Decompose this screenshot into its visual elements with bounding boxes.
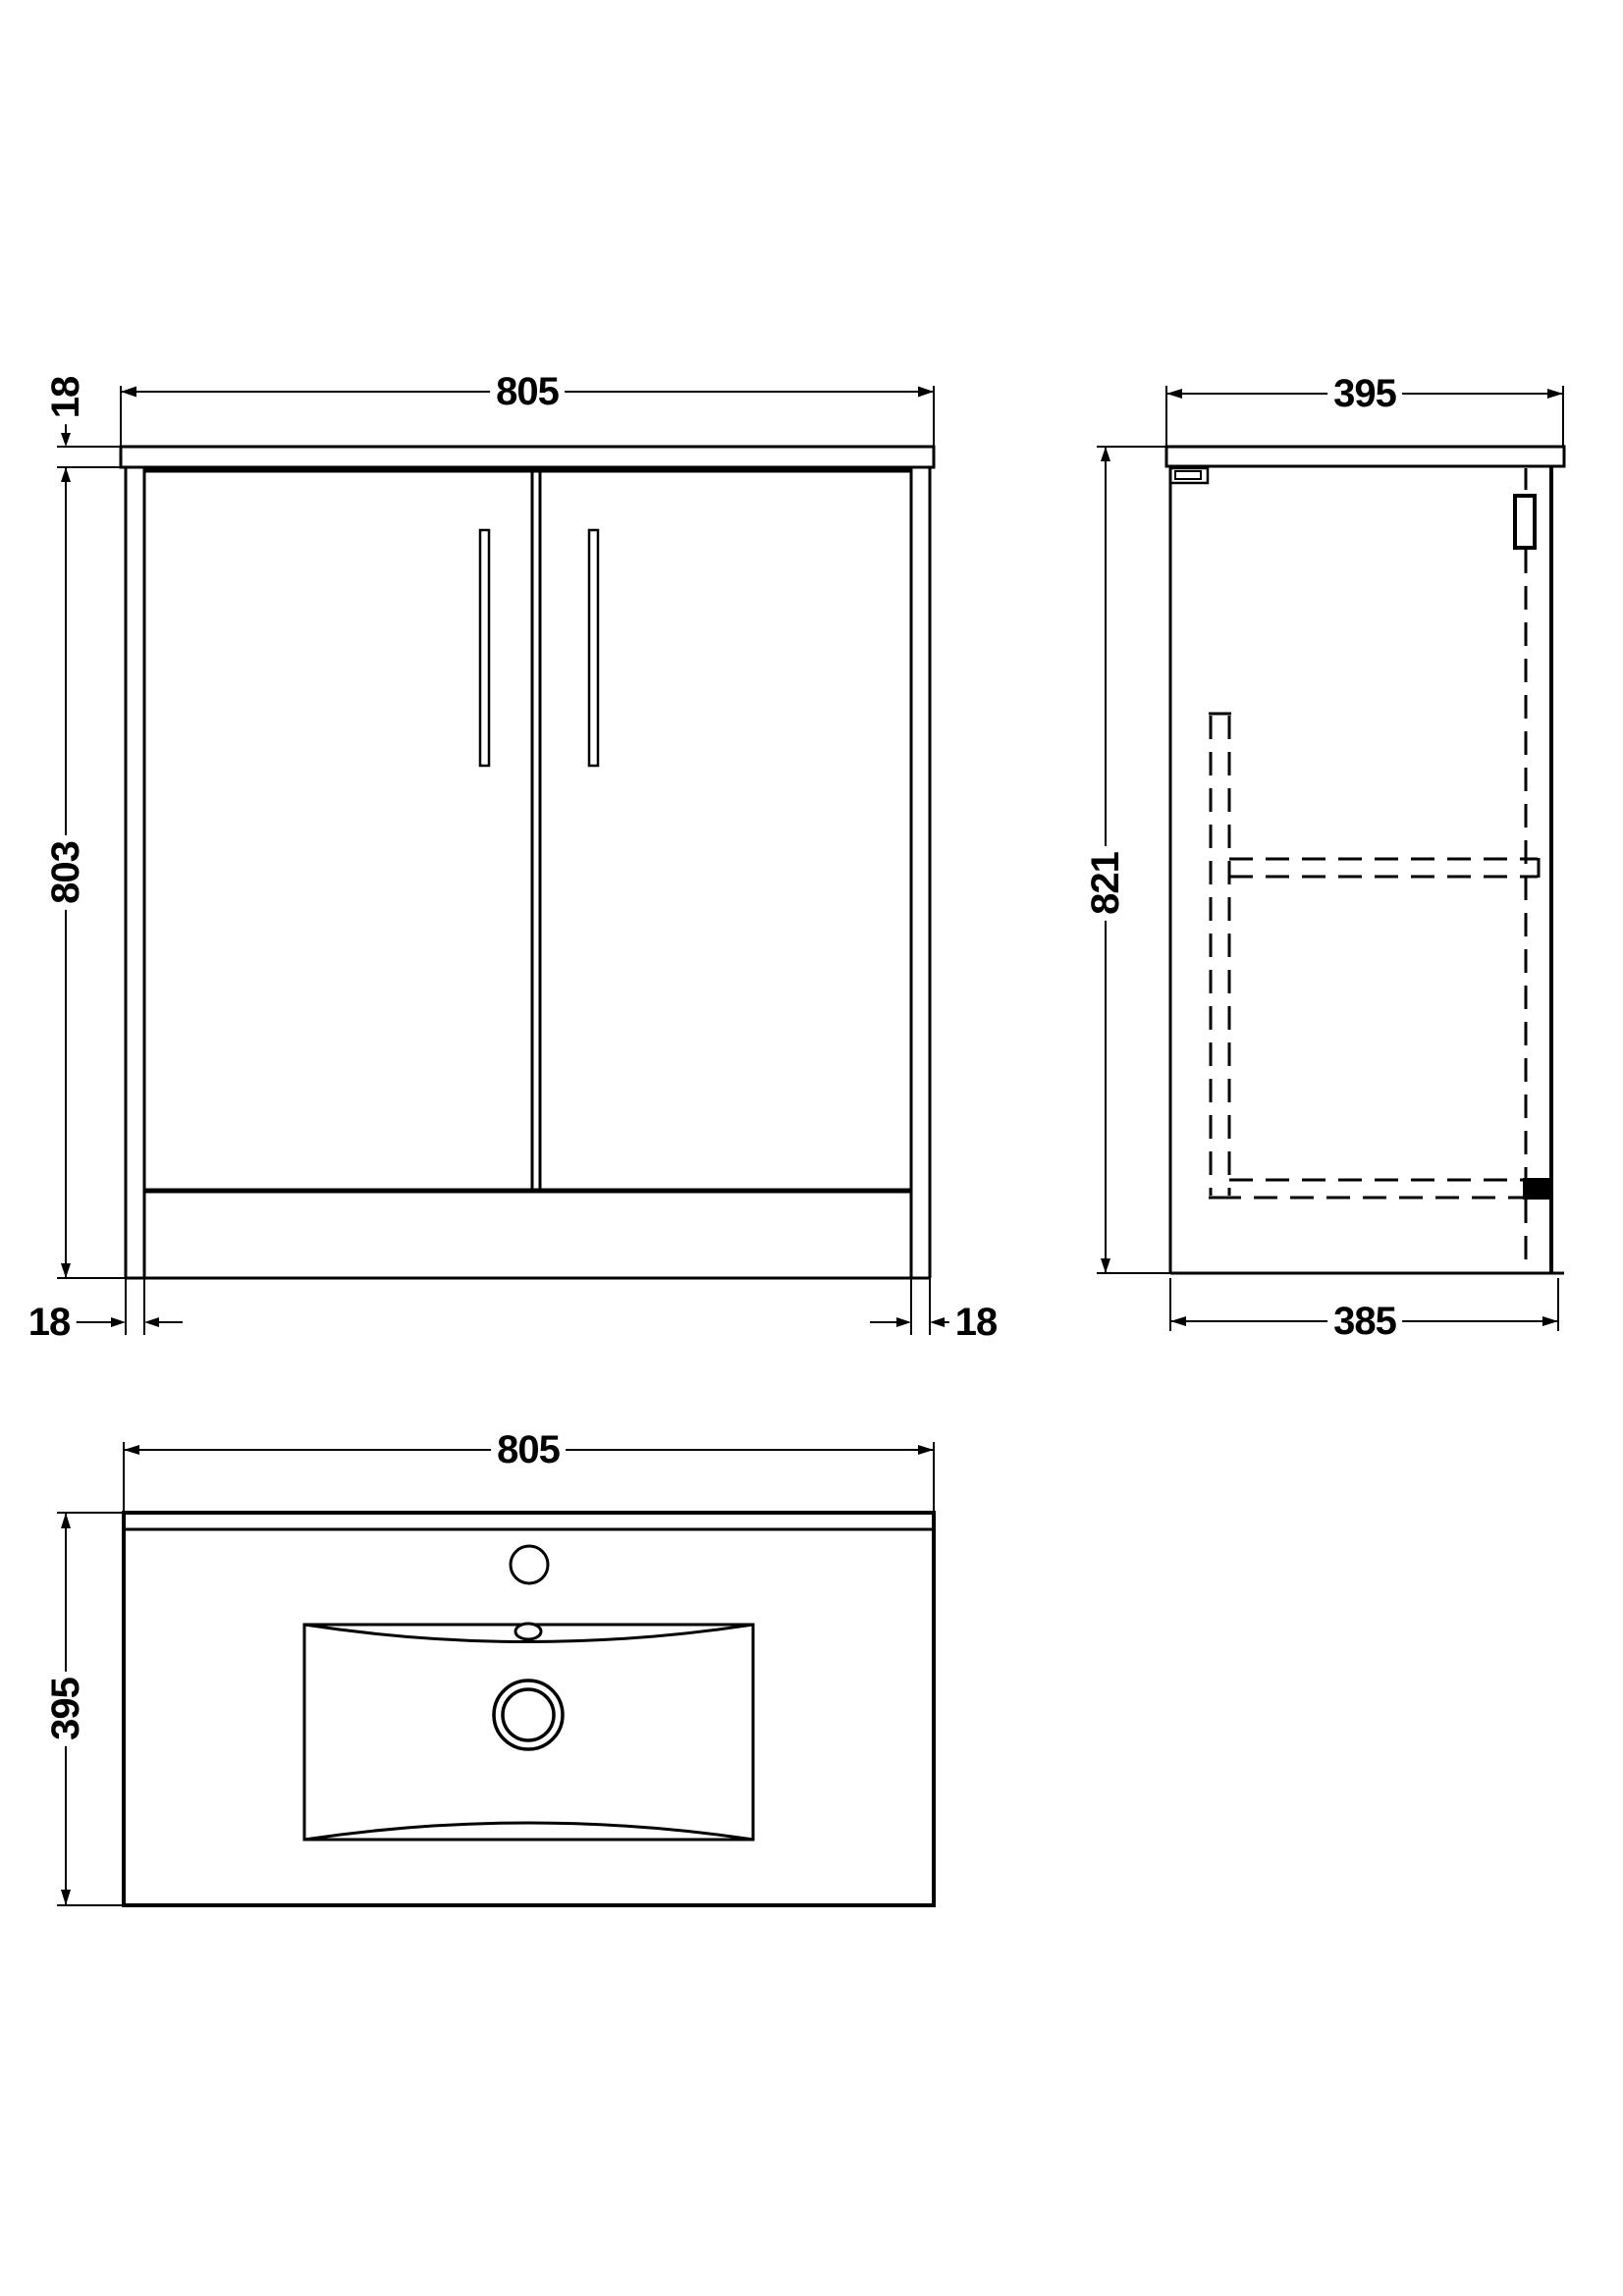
technical-drawing-canvas: 805 18 803 18 18 395 821 385 805 395 (0, 0, 1623, 2296)
front-door-gap (532, 472, 540, 1189)
plan-depth-label: 395 (44, 1672, 87, 1746)
front-left-door-handle (480, 530, 489, 766)
front-left-side-panel (126, 467, 144, 1278)
front-feet-extensions (126, 1278, 930, 1335)
front-worktop-thickness-dimension (57, 420, 121, 467)
front-view (57, 386, 954, 1335)
front-right-side-panel (911, 467, 930, 1278)
side-bottom-shelf-cap (1523, 1178, 1552, 1200)
drawing-linework (0, 0, 1623, 2296)
side-door-hidden-lines (1211, 716, 1229, 1196)
plan-view (57, 1442, 934, 1905)
front-right-door-handle (589, 530, 598, 766)
side-height-label: 821 (1084, 846, 1127, 921)
front-right-panel-label: 18 (949, 1301, 1003, 1344)
front-height-label: 803 (44, 835, 87, 910)
side-wall-bracket (1515, 496, 1535, 548)
side-worktop (1166, 447, 1564, 466)
front-worktop (121, 447, 934, 467)
side-view (1097, 386, 1564, 1331)
side-carcass-depth-label: 385 (1327, 1300, 1402, 1343)
plan-overflow-hole (515, 1624, 541, 1639)
side-middle-shelf (1229, 859, 1538, 877)
side-depth-label: 395 (1327, 372, 1402, 415)
plan-basin-bottom-curve (304, 1823, 753, 1840)
plan-waste-hole-inner (503, 1689, 554, 1740)
plan-width-label: 805 (491, 1428, 566, 1471)
side-bottom-shelf (1217, 1180, 1523, 1198)
front-worktop-thickness-label: 18 (44, 371, 87, 425)
front-left-panel-label: 18 (23, 1301, 77, 1344)
front-width-label: 805 (490, 370, 565, 413)
plan-tap-hole (511, 1546, 548, 1583)
side-hinge-plate-inner (1175, 471, 1201, 479)
